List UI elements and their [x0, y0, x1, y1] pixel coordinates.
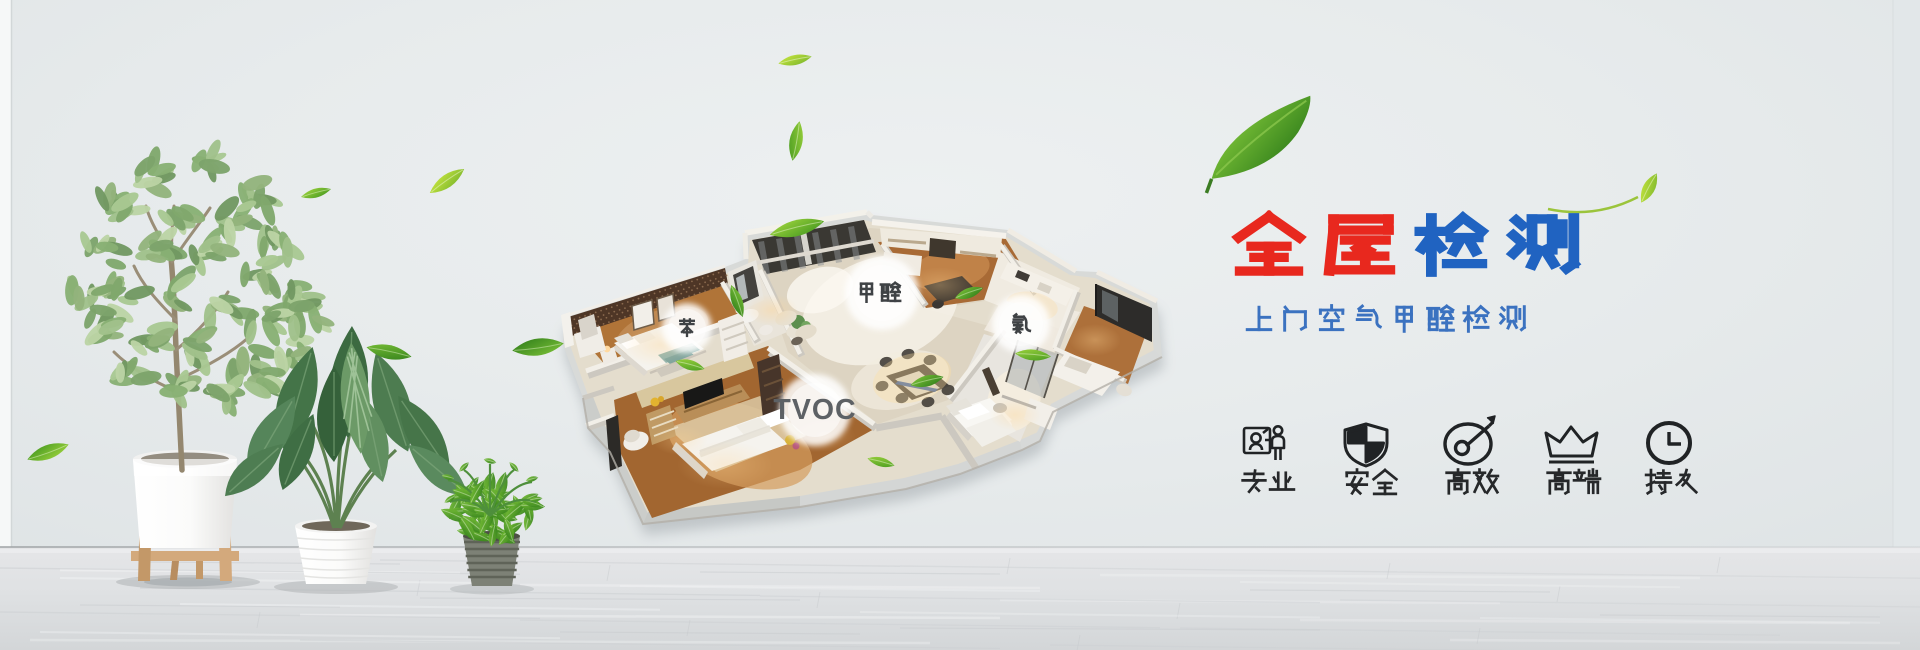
svg-text:TVOC: TVOC — [773, 394, 856, 426]
